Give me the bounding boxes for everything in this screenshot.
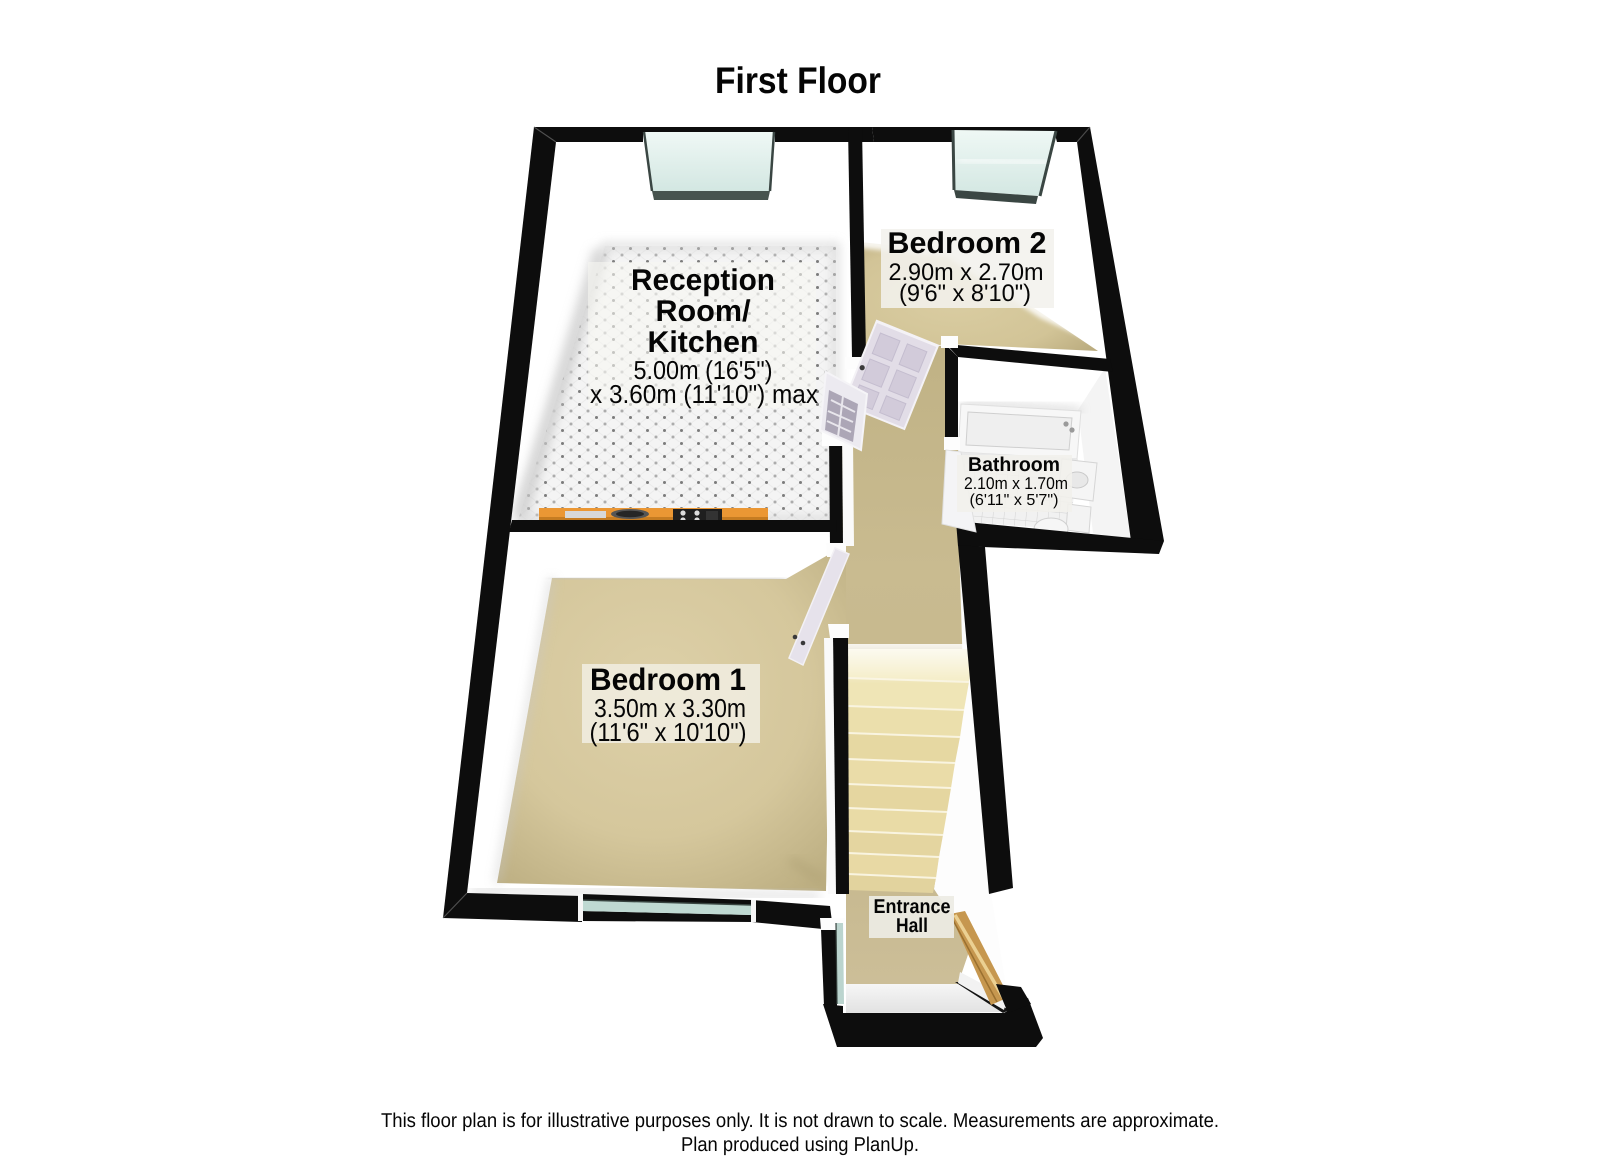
svg-text:Bathroom: Bathroom — [968, 454, 1060, 476]
svg-text:Bedroom 1: Bedroom 1 — [590, 662, 746, 697]
svg-text:(9'6" x 8'10"): (9'6" x 8'10") — [899, 280, 1031, 307]
svg-text:Bedroom 2: Bedroom 2 — [888, 227, 1047, 260]
svg-text:2.10m x 1.70m: 2.10m x 1.70m — [964, 474, 1068, 493]
svg-text:Reception: Reception — [631, 264, 775, 297]
svg-text:Plan produced using PlanUp.: Plan produced using PlanUp. — [681, 1134, 919, 1156]
svg-text:Room/: Room/ — [656, 295, 752, 328]
svg-text:First Floor: First Floor — [715, 60, 881, 101]
svg-text:This floor plan is for illustr: This floor plan is for illustrative purp… — [381, 1110, 1219, 1132]
svg-text:(6'11" x 5'7"): (6'11" x 5'7") — [970, 492, 1059, 509]
svg-text:Hall: Hall — [896, 915, 928, 937]
svg-text:x 3.60m (11'10") max: x 3.60m (11'10") max — [590, 379, 818, 409]
svg-text:(11'6" x 10'10"): (11'6" x 10'10") — [590, 717, 747, 747]
